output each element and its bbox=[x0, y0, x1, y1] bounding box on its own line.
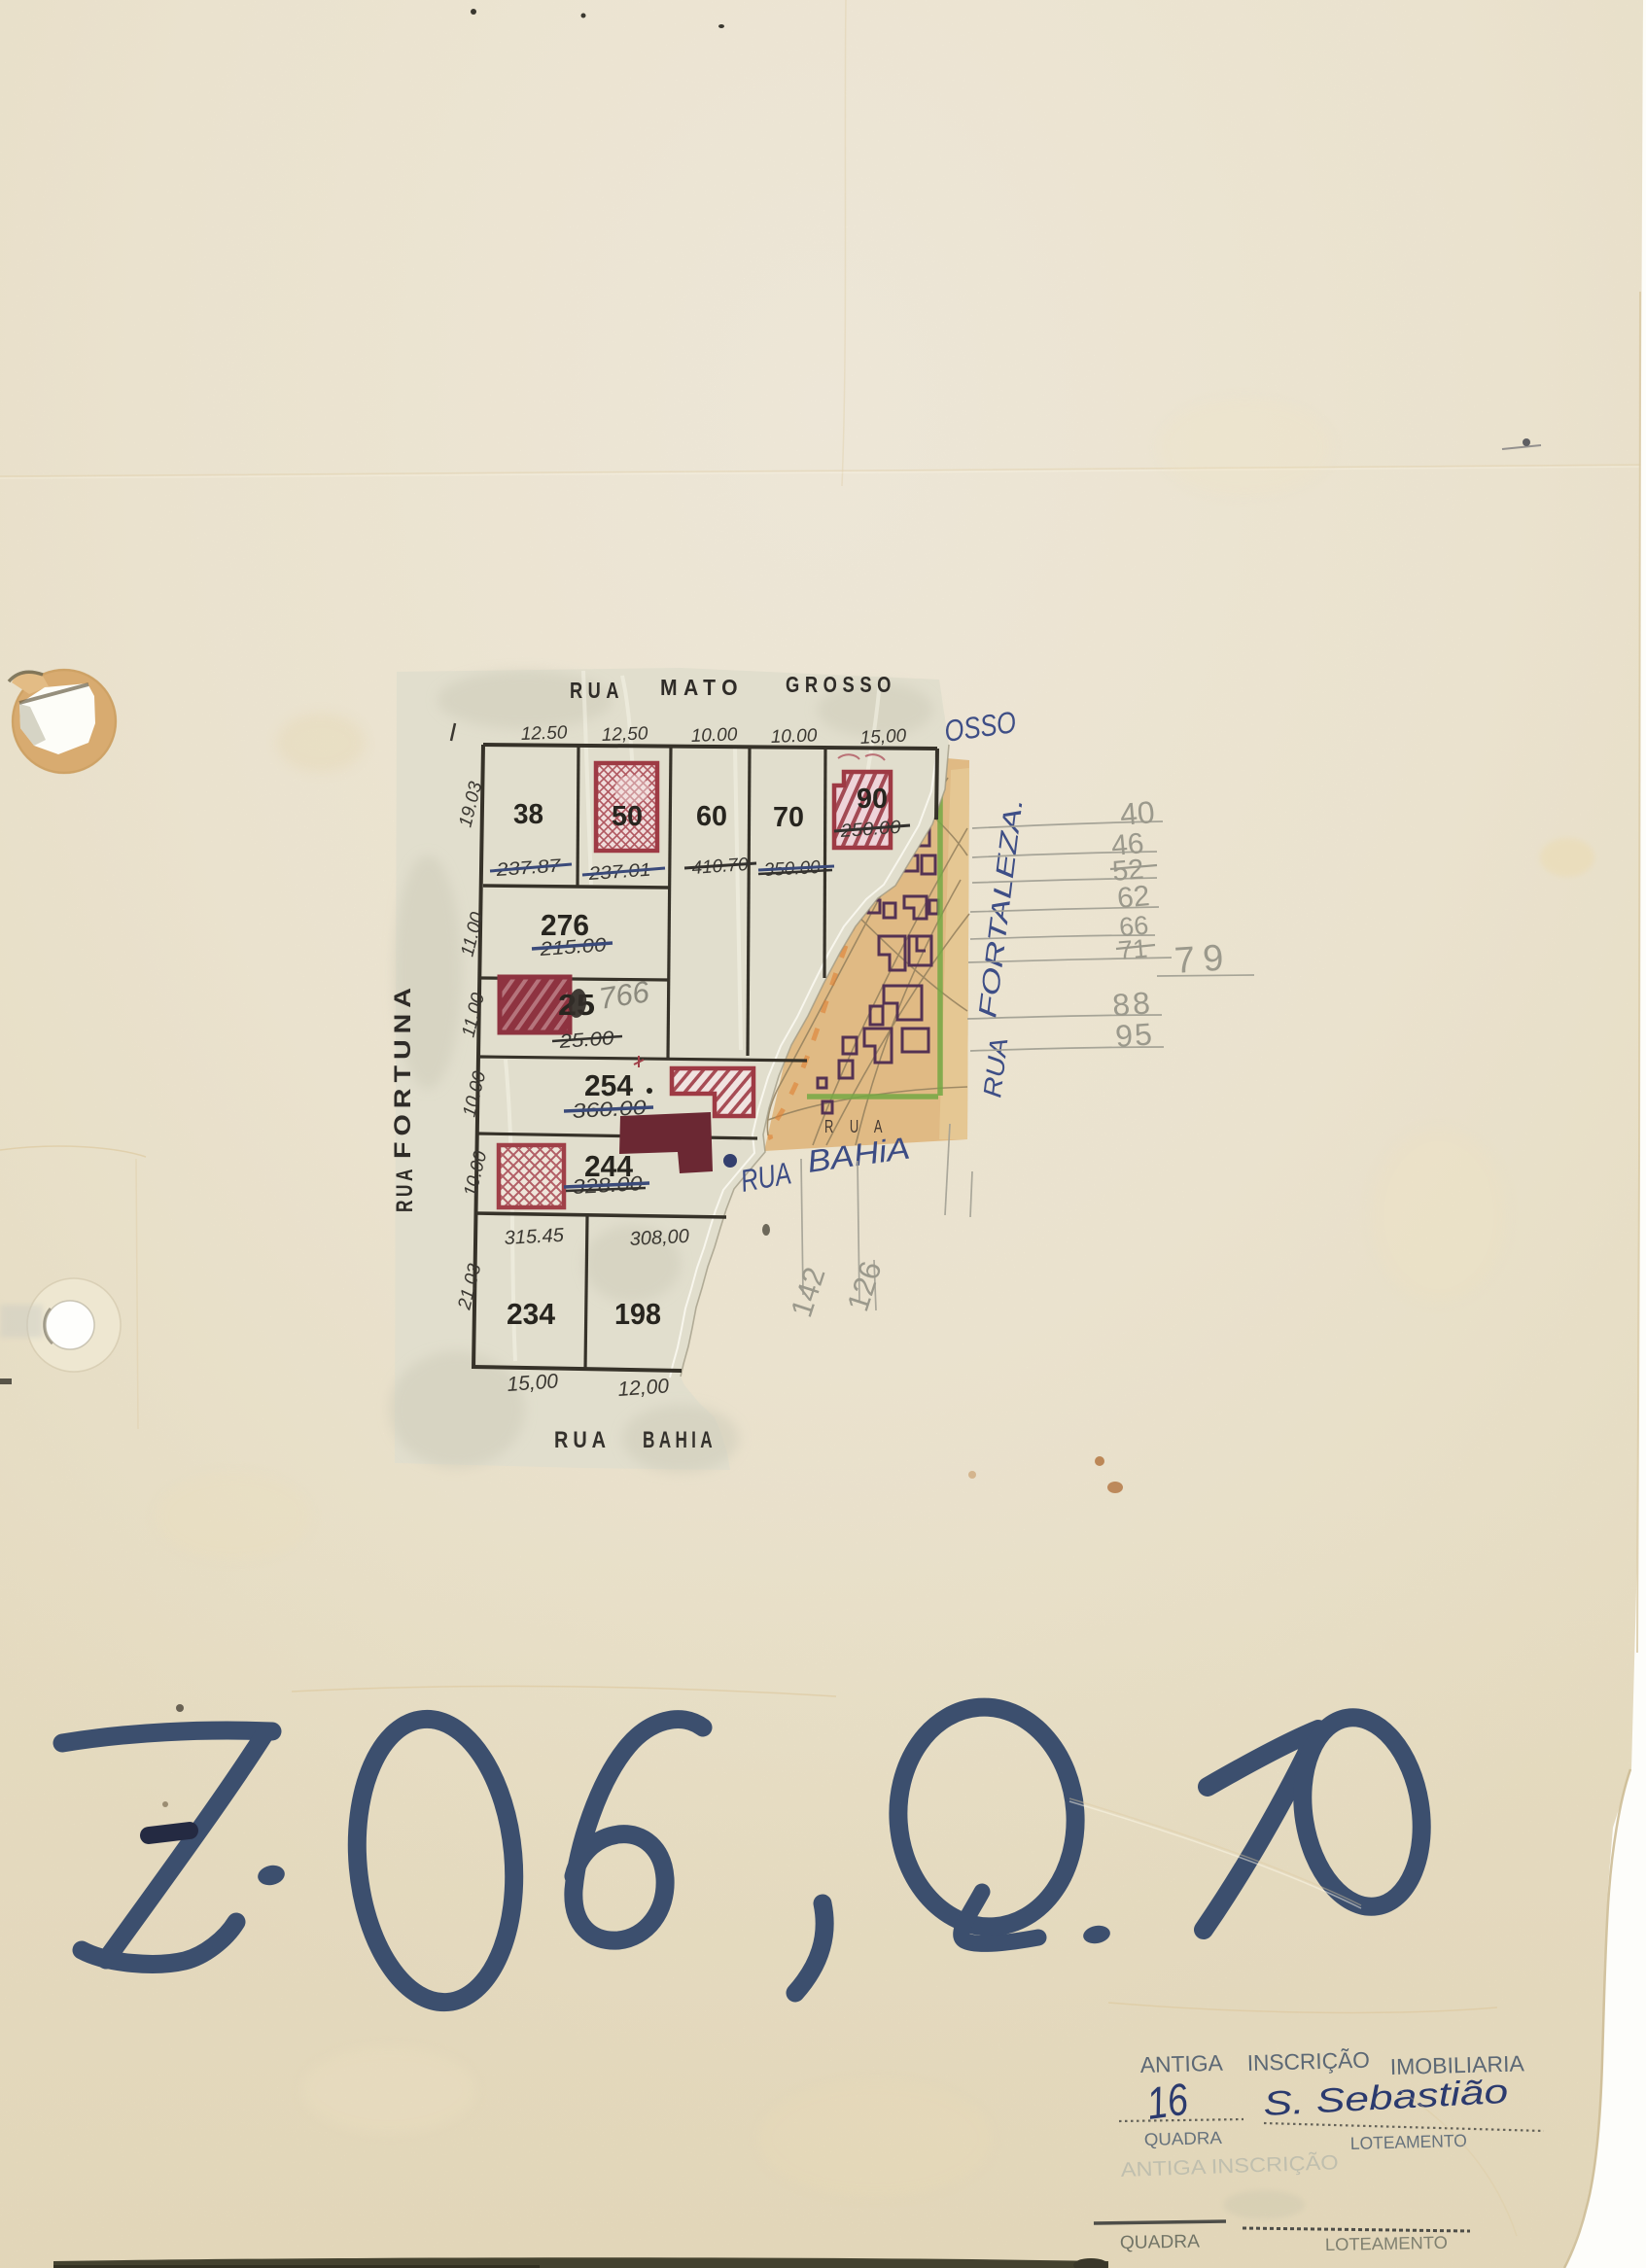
svg-text:15,00: 15,00 bbox=[507, 1370, 559, 1396]
svg-text:QUADRA: QUADRA bbox=[1144, 2128, 1222, 2149]
svg-text:RUA: RUA bbox=[554, 1427, 611, 1453]
svg-text:INSCRIÇÃO: INSCRIÇÃO bbox=[1246, 2047, 1370, 2076]
svg-text:QUADRA: QUADRA bbox=[1120, 2232, 1201, 2253]
svg-text:10.00: 10.00 bbox=[770, 725, 818, 748]
svg-text:308,00: 308,00 bbox=[629, 1226, 689, 1250]
svg-text:38: 38 bbox=[513, 799, 543, 830]
svg-text:RUA: RUA bbox=[392, 1166, 418, 1212]
svg-text:12.50: 12.50 bbox=[520, 722, 568, 745]
svg-text:71: 71 bbox=[1117, 933, 1149, 965]
svg-text:FORTUNA: FORTUNA bbox=[390, 982, 416, 1159]
svg-text:GROSSO: GROSSO bbox=[786, 672, 896, 697]
svg-text:10.00: 10.00 bbox=[690, 724, 738, 747]
svg-text:12,00: 12,00 bbox=[617, 1375, 670, 1401]
svg-text:LOTEAMENTO: LOTEAMENTO bbox=[1350, 2131, 1467, 2153]
svg-text:MATO: MATO bbox=[660, 675, 744, 700]
svg-text:12,50: 12,50 bbox=[601, 723, 648, 746]
svg-text:RUA: RUA bbox=[570, 678, 624, 703]
svg-text:40: 40 bbox=[1118, 794, 1156, 832]
svg-text:62: 62 bbox=[1116, 880, 1151, 915]
svg-text:79: 79 bbox=[1173, 937, 1233, 982]
svg-text:15,00: 15,00 bbox=[859, 726, 907, 749]
svg-text:90: 90 bbox=[857, 784, 888, 815]
svg-text:50: 50 bbox=[612, 801, 643, 832]
svg-text:95: 95 bbox=[1114, 1016, 1155, 1054]
svg-text:LOTEAMENTO: LOTEAMENTO bbox=[1325, 2233, 1448, 2254]
svg-text:BAHIA: BAHIA bbox=[643, 1427, 717, 1453]
svg-text:315.45: 315.45 bbox=[504, 1225, 565, 1249]
svg-text:60: 60 bbox=[696, 801, 727, 832]
svg-text:234: 234 bbox=[507, 1297, 556, 1331]
svg-text:198: 198 bbox=[614, 1297, 661, 1331]
svg-text:70: 70 bbox=[773, 802, 804, 833]
